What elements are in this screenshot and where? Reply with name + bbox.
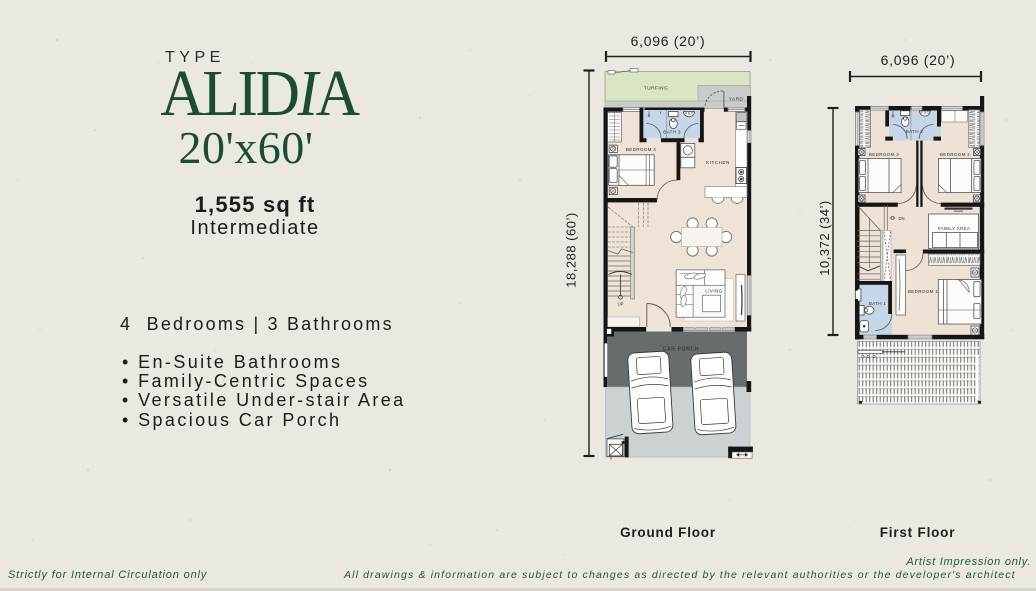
- svg-text:BEDROOM 3: BEDROOM 3: [869, 152, 899, 157]
- svg-text:6,096 (20’): 6,096 (20’): [881, 52, 956, 68]
- svg-text:BATH 2: BATH 2: [906, 129, 924, 134]
- svg-text:BEDROOM 4: BEDROOM 4: [626, 147, 656, 152]
- svg-text:CAR PORCH: CAR PORCH: [663, 347, 699, 353]
- svg-text:DN: DN: [898, 216, 904, 221]
- svg-text:UP: UP: [618, 302, 624, 307]
- svg-text:BATH 1: BATH 1: [869, 301, 887, 306]
- svg-text:YARD: YARD: [729, 97, 743, 102]
- svg-text:BEDROOM 1: BEDROOM 1: [908, 289, 938, 294]
- svg-text:6,096 (20’): 6,096 (20’): [631, 33, 706, 49]
- svg-text:FAMILY AREA: FAMILY AREA: [938, 226, 971, 231]
- svg-text:18,288 (60’): 18,288 (60’): [564, 212, 579, 287]
- svg-text:BEDROOM 2: BEDROOM 2: [940, 152, 970, 157]
- svg-text:BATH 3: BATH 3: [663, 130, 681, 135]
- svg-text:LIVING: LIVING: [705, 289, 722, 294]
- svg-text:10,372 (34’): 10,372 (34’): [817, 200, 832, 275]
- svg-text:KITCHEN: KITCHEN: [706, 160, 730, 165]
- svg-text:TURFING: TURFING: [644, 86, 668, 91]
